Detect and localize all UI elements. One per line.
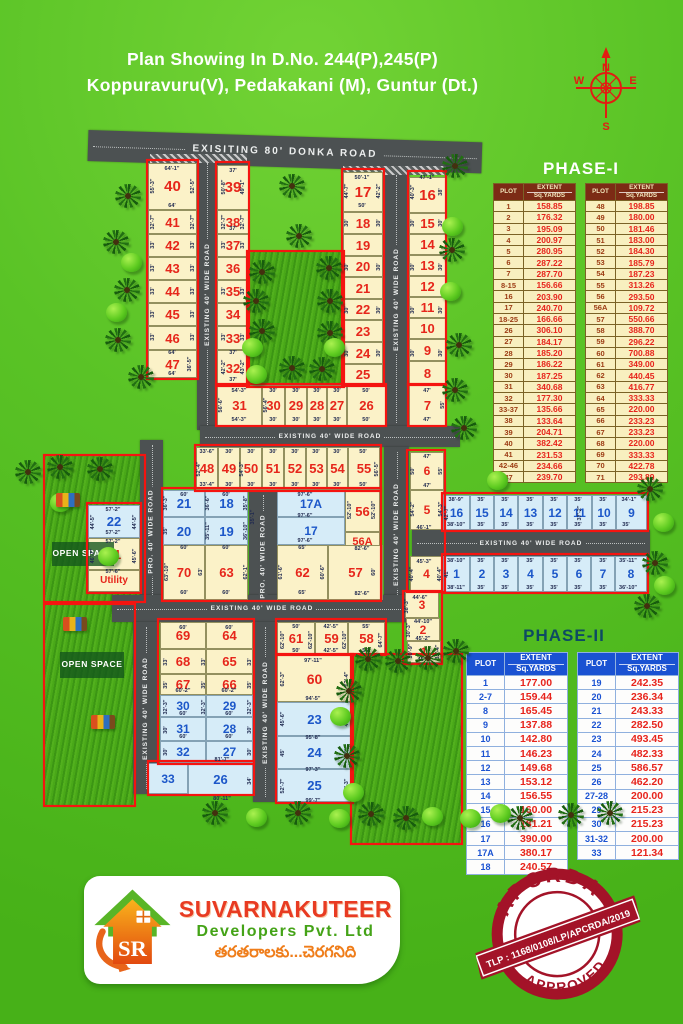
palm-tree-icon bbox=[355, 647, 381, 671]
plot-number-cell: 33-37 bbox=[494, 404, 524, 415]
plot-number-cell: 17A bbox=[467, 846, 505, 860]
extent-value-cell: 313.26 bbox=[616, 280, 668, 291]
dimension-label: 33'-4" bbox=[200, 482, 215, 488]
palm-tree-icon bbox=[202, 801, 228, 825]
dimension-label: 45'-2" bbox=[416, 636, 431, 642]
dimension-label: 63' bbox=[198, 568, 204, 575]
dimension-label: 62'-10" bbox=[342, 631, 348, 649]
palm-tree-icon bbox=[316, 256, 342, 280]
plot-p1-21: 21 bbox=[343, 277, 383, 299]
dimension-label: 30' bbox=[247, 748, 253, 755]
plot-number-cell: 14 bbox=[467, 789, 505, 803]
extent-value-cell: 137.88 bbox=[505, 718, 568, 732]
road-label: PRO. 40' WIDE ROAD bbox=[147, 486, 156, 576]
extent-value-cell: 177.00 bbox=[505, 676, 568, 690]
dimension-label: 32'-3" bbox=[163, 700, 169, 715]
dimension-label: 33' bbox=[240, 241, 246, 248]
dimension-label: 46'-1" bbox=[417, 525, 432, 531]
dimension-label: 35' bbox=[477, 522, 484, 528]
plot-number-cell: 17 bbox=[494, 302, 524, 313]
table-row: 59296.22 bbox=[586, 336, 668, 347]
extent-value-cell: 158.85 bbox=[524, 201, 576, 212]
table-row: 26306.10 bbox=[494, 325, 576, 336]
dimension-label: 60' bbox=[225, 734, 232, 740]
dimension-label: 97'-6" bbox=[298, 492, 313, 498]
bush-icon bbox=[121, 253, 142, 272]
table-row: 29215.23 bbox=[578, 803, 679, 817]
dimension-label: 61'-6" bbox=[278, 565, 284, 580]
road-label: EXISTING 40' WIDE ROAD bbox=[276, 432, 385, 441]
dimension-label: 32'-3" bbox=[201, 700, 207, 715]
dimension-label: 30' bbox=[333, 388, 340, 394]
table-row: 12149.68 bbox=[467, 761, 568, 775]
dimension-label: 33' bbox=[221, 241, 227, 248]
dimension-label: 37' bbox=[229, 350, 236, 356]
dimension-label: 30' bbox=[438, 263, 444, 270]
palm-tree-icon bbox=[558, 803, 584, 827]
dimension-label: 33' bbox=[247, 658, 253, 665]
table-row: 24482.33 bbox=[578, 746, 679, 760]
dimension-label: 30' bbox=[313, 388, 320, 394]
dimension-label: 56'-6" bbox=[218, 398, 224, 413]
plot-number-cell: 64 bbox=[586, 393, 616, 404]
dimension-label: 33' bbox=[150, 333, 156, 340]
dimension-label: 57'-2" bbox=[106, 530, 121, 536]
table-row: 11146.23 bbox=[467, 746, 568, 760]
extent-value-cell: 177.30 bbox=[524, 393, 576, 404]
extent-value-cell: 203.90 bbox=[524, 291, 576, 302]
extent-value-cell: 180.00 bbox=[616, 212, 668, 223]
extent-value-cell: 236.34 bbox=[616, 690, 679, 704]
palm-tree-icon bbox=[385, 649, 411, 673]
extent-value-cell: 109.72 bbox=[616, 302, 668, 313]
plot-p1-10: 10 bbox=[409, 318, 446, 339]
extent-value-cell: 333.33 bbox=[616, 393, 668, 404]
table-row: 18-25166.66 bbox=[494, 313, 576, 324]
dimension-label: 35'-11" bbox=[205, 522, 211, 540]
table-row: 58388.70 bbox=[586, 325, 668, 336]
plot-number-cell: 54 bbox=[586, 268, 616, 279]
bush-icon bbox=[106, 303, 127, 322]
plot-number-cell: 42-46 bbox=[494, 460, 524, 471]
extent-value-cell: 186.22 bbox=[524, 359, 576, 370]
dimension-label: 82'-6" bbox=[355, 546, 370, 552]
dimension-label: 33' bbox=[150, 241, 156, 248]
table-row: 54187.23 bbox=[586, 268, 668, 279]
dimension-label: 56'-4" bbox=[263, 398, 269, 413]
extent-value-cell: 282.50 bbox=[616, 718, 679, 732]
dimension-label: 62'-1" bbox=[243, 565, 249, 580]
table-row: 49180.00 bbox=[586, 212, 668, 223]
dimension-label: 30' bbox=[292, 388, 299, 394]
plot-number-cell: 2-7 bbox=[467, 690, 505, 704]
palm-tree-icon bbox=[285, 801, 311, 825]
extent-value-cell: 133.64 bbox=[524, 415, 576, 426]
dimension-label: 38'-10" bbox=[447, 522, 465, 528]
dimension-label: 57'-2" bbox=[106, 539, 121, 545]
table-row: 65220.00 bbox=[586, 404, 668, 415]
dimension-label: 40'-4" bbox=[409, 567, 415, 582]
table-row: 32177.30 bbox=[494, 393, 576, 404]
dimension-label: 30'-3" bbox=[406, 623, 412, 638]
dimension-label: 30' bbox=[376, 219, 382, 226]
dimension-label: 32'-7" bbox=[221, 215, 227, 230]
extent-value-cell: 349.00 bbox=[616, 359, 668, 370]
dimension-label: 32'-7" bbox=[150, 215, 156, 230]
plot-number-cell: 1 bbox=[467, 676, 505, 690]
dimension-label: 42'-7" bbox=[444, 506, 450, 521]
table-row: 17390.00 bbox=[467, 832, 568, 846]
dimension-label: 37' bbox=[229, 168, 236, 174]
table-row: 61349.00 bbox=[586, 359, 668, 370]
dimension-label: 47' bbox=[423, 454, 430, 460]
table-row: 62440.45 bbox=[586, 370, 668, 381]
table-row: 14156.55 bbox=[467, 789, 568, 803]
dimension-label: 45' bbox=[280, 749, 286, 756]
table-row: 63416.77 bbox=[586, 381, 668, 392]
plot-number-cell: 38 bbox=[494, 415, 524, 426]
dimension-label: 44'-10" bbox=[414, 619, 432, 625]
dimension-label: 56'-5" bbox=[374, 462, 380, 477]
bush-icon bbox=[242, 338, 263, 357]
dimension-label: 55'-3" bbox=[150, 179, 156, 194]
table-row: 5280.95 bbox=[494, 246, 576, 257]
plot-number-cell: 60 bbox=[586, 347, 616, 358]
extent-value-cell: 135.66 bbox=[524, 404, 576, 415]
dimension-label: 50' bbox=[358, 203, 365, 209]
table-row: 52184.30 bbox=[586, 246, 668, 257]
plot-number-cell: 7 bbox=[494, 268, 524, 279]
table-row: 40382.42 bbox=[494, 438, 576, 449]
table-row: 19242.35 bbox=[578, 676, 679, 690]
table-row: 20236.34 bbox=[578, 690, 679, 704]
dimension-label: 45'-3" bbox=[417, 559, 432, 565]
table-row: 68220.00 bbox=[586, 438, 668, 449]
dimension-label: 35' bbox=[574, 558, 581, 564]
playground-icon bbox=[63, 617, 87, 631]
plot-number-cell: 69 bbox=[586, 449, 616, 460]
dimension-label: 45'-6" bbox=[280, 712, 286, 727]
dimension-label: 46'-7" bbox=[90, 549, 96, 564]
table-row: 10142.80 bbox=[467, 732, 568, 746]
dimension-label: 30' bbox=[269, 417, 276, 423]
palm-tree-icon bbox=[115, 184, 141, 208]
extent-value-cell: 293.50 bbox=[616, 291, 668, 302]
plot-number-cell: 66 bbox=[586, 415, 616, 426]
table-row: 60700.88 bbox=[586, 347, 668, 358]
extent-value-cell: 306.10 bbox=[524, 325, 576, 336]
developer-logo: SR SUVARNAKUTEER Developers Pvt. Ltd తరత… bbox=[84, 876, 400, 984]
dimension-label: 47' bbox=[423, 417, 430, 423]
dimension-label: 42'-5" bbox=[324, 624, 339, 630]
palm-tree-icon bbox=[597, 801, 623, 825]
extent-value-cell: 220.00 bbox=[616, 404, 668, 415]
extent-value-cell: 181.46 bbox=[616, 223, 668, 234]
plot-number-cell: 22 bbox=[578, 718, 616, 732]
table-row: 56293.50 bbox=[586, 291, 668, 302]
dimension-label: 60'-2" bbox=[222, 688, 237, 694]
dimension-label: 30' bbox=[376, 263, 382, 270]
bush-icon bbox=[653, 513, 674, 532]
dimension-label: 54'-3" bbox=[239, 462, 245, 477]
plot-number-cell: 12 bbox=[467, 761, 505, 775]
extent-value-cell: 176.32 bbox=[524, 212, 576, 223]
plot-number-cell: 40 bbox=[494, 438, 524, 449]
dimension-label: 30' bbox=[292, 417, 299, 423]
plot-p1-36: 36 bbox=[217, 257, 249, 280]
phase2-table-left: PLOT EXTENTSq.YARDS 1177.002-7159.448165… bbox=[466, 652, 568, 875]
plot-p1-19: 19 bbox=[343, 234, 383, 256]
dimension-label: 44'-7" bbox=[344, 184, 350, 199]
table-row: 26462.20 bbox=[578, 775, 679, 789]
plot-number-cell: 71 bbox=[586, 472, 616, 483]
dimension-label: 35' bbox=[526, 558, 533, 564]
dimension-label: 33' bbox=[150, 287, 156, 294]
plot-number-cell: 11 bbox=[467, 746, 505, 760]
dimension-label: 30' bbox=[410, 306, 416, 313]
table-row: 70422.78 bbox=[586, 460, 668, 471]
table-row: 41231.53 bbox=[494, 449, 576, 460]
palm-tree-icon bbox=[642, 551, 668, 575]
plot-number-cell: 28 bbox=[494, 347, 524, 358]
phase1-table-left: PLOT EXTENTSq.YARDS 1158.852176.323195.0… bbox=[493, 183, 576, 483]
table-row: 39204.71 bbox=[494, 426, 576, 437]
plot-number-cell: 39 bbox=[494, 426, 524, 437]
extent-value-cell: 380.17 bbox=[505, 846, 568, 860]
extent-value-cell: 198.85 bbox=[616, 201, 668, 212]
dimension-label: 35' bbox=[574, 522, 581, 528]
dimension-label: 44'-5" bbox=[90, 515, 96, 530]
table-row: 13153.12 bbox=[467, 775, 568, 789]
dimension-label: 32'-7" bbox=[240, 215, 246, 230]
dimension-label: 33' bbox=[190, 287, 196, 294]
dimension-label: 42'-2" bbox=[376, 184, 382, 199]
dimension-label: 30' bbox=[344, 263, 350, 270]
palm-tree-icon bbox=[47, 455, 73, 479]
dimension-label: 35' bbox=[501, 558, 508, 564]
dimension-label: 52'-4" bbox=[196, 462, 202, 477]
plot-p2-19: 19 bbox=[205, 517, 248, 545]
dimension-label: 60' bbox=[222, 545, 229, 551]
palm-tree-icon bbox=[634, 594, 660, 618]
plot-p2-26: 26 bbox=[188, 763, 253, 795]
table-row: 30215.23 bbox=[578, 817, 679, 831]
company-name: SUVARNAKUTEER bbox=[179, 896, 392, 923]
extent-value-cell: 200.00 bbox=[616, 789, 679, 803]
extent-value-cell: 184.30 bbox=[616, 246, 668, 257]
plot-number-cell: 13 bbox=[467, 775, 505, 789]
dimension-label: 36'-3" bbox=[163, 496, 169, 511]
table-row: 55313.26 bbox=[586, 280, 668, 291]
dimension-label: 64' bbox=[168, 203, 175, 209]
logo-house-icon: SR bbox=[92, 883, 173, 977]
extent-value-cell: 240.70 bbox=[524, 302, 576, 313]
phase2-plot-header: PLOT bbox=[578, 653, 616, 676]
plot-number-cell: 41 bbox=[494, 449, 524, 460]
dimension-label: 65' bbox=[298, 590, 305, 596]
plot-p1-65: 65 bbox=[206, 649, 253, 674]
dimension-label: 30' bbox=[344, 349, 350, 356]
dimension-label: 30' bbox=[333, 482, 340, 488]
dimension-label: 35' bbox=[501, 585, 508, 591]
dimension-label: 64' bbox=[168, 371, 175, 377]
phase2-extent-header: EXTENTSq.YARDS bbox=[505, 653, 568, 676]
dimension-label: 97'-11" bbox=[304, 658, 322, 664]
table-row: 9137.88 bbox=[467, 718, 568, 732]
dimension-label: 33' bbox=[150, 264, 156, 271]
dimension-label: 41' bbox=[444, 570, 450, 577]
table-row: 1158.85 bbox=[494, 201, 576, 212]
plot-p1-23: 23 bbox=[343, 320, 383, 342]
dimension-label: 30' bbox=[410, 263, 416, 270]
road-label: EXISTING 40' WIDE ROAD bbox=[477, 539, 586, 548]
bush-icon bbox=[422, 807, 443, 826]
palm-tree-icon bbox=[334, 744, 360, 768]
extent-value-cell: 187.23 bbox=[616, 268, 668, 279]
extent-value-cell: 195.09 bbox=[524, 223, 576, 234]
dimension-label: 30' bbox=[344, 219, 350, 226]
phase2-plot-header: PLOT bbox=[467, 653, 505, 676]
plot-number-cell: 19 bbox=[578, 676, 616, 690]
extent-value-cell: 233.23 bbox=[616, 415, 668, 426]
extent-value-cell: 220.00 bbox=[616, 438, 668, 449]
table-row: 8-15156.66 bbox=[494, 280, 576, 291]
dimension-label: 57'-2" bbox=[106, 507, 121, 513]
dimension-label: 55' bbox=[440, 401, 446, 408]
table-row: 25586.57 bbox=[578, 761, 679, 775]
plot-number-cell: 63 bbox=[586, 381, 616, 392]
dimension-label: 35' bbox=[550, 497, 557, 503]
bush-icon bbox=[654, 576, 675, 595]
dimension-label: 30' bbox=[269, 449, 276, 455]
table-row: 67233.23 bbox=[586, 426, 668, 437]
dimension-label: 65' bbox=[298, 545, 305, 551]
bush-icon bbox=[490, 804, 511, 823]
palm-tree-icon bbox=[286, 224, 312, 248]
dimension-label: 45'-6" bbox=[132, 549, 138, 564]
extent-value-cell: 185.20 bbox=[524, 347, 576, 358]
extent-value-cell: 142.80 bbox=[505, 732, 568, 746]
palm-tree-icon bbox=[443, 639, 469, 663]
dimension-label: 35' bbox=[574, 497, 581, 503]
dimension-label: 30' bbox=[410, 219, 416, 226]
dimension-label: 47' bbox=[423, 388, 430, 394]
palm-tree-icon bbox=[103, 230, 129, 254]
phase1-table-right: PLOT EXTENTSq.YARDS 48198.8549180.005018… bbox=[585, 183, 668, 483]
dimension-label: 60' bbox=[225, 625, 232, 631]
dimension-label: 37'-2" bbox=[577, 506, 583, 521]
dimension-label: 30' bbox=[291, 449, 298, 455]
dimension-label: 60' bbox=[222, 590, 229, 596]
road: EXISTING 40' WIDE ROAD bbox=[197, 158, 217, 430]
dimension-label: 37' bbox=[229, 226, 236, 232]
dimension-label: 42'-2" bbox=[221, 360, 227, 375]
extent-value-cell: 200.00 bbox=[616, 832, 679, 846]
road-label: EXISTING 40' WIDE ROAD bbox=[141, 654, 150, 763]
table-row: 17240.70 bbox=[494, 302, 576, 313]
dimension-label: 52'-5" bbox=[190, 179, 196, 194]
dimension-label: 35' bbox=[622, 522, 629, 528]
table-row: 3195.09 bbox=[494, 223, 576, 234]
dimension-label: 40'-3" bbox=[410, 185, 416, 200]
phase2-table-right: PLOT EXTENTSq.YARDS 19242.3520236.342124… bbox=[577, 652, 679, 860]
dimension-label: 35' bbox=[599, 585, 606, 591]
dimension-label: 33' bbox=[221, 333, 227, 340]
plot-number-cell: 8 bbox=[467, 704, 505, 718]
dimension-label: 50' bbox=[359, 449, 366, 455]
palm-tree-icon bbox=[279, 356, 305, 380]
dimension-label: 32'-7" bbox=[190, 215, 196, 230]
playground-icon bbox=[91, 715, 115, 729]
bush-icon bbox=[329, 809, 350, 828]
dimension-label: 30' bbox=[247, 726, 253, 733]
dimension-label: 60' bbox=[371, 568, 377, 575]
plot-number-cell: 23 bbox=[578, 732, 616, 746]
extent-value-cell: 146.23 bbox=[505, 746, 568, 760]
plot-number-cell: 6 bbox=[494, 257, 524, 268]
dimension-label: 55' bbox=[438, 467, 444, 474]
extent-value-cell: 296.22 bbox=[616, 336, 668, 347]
dimension-label: 30' bbox=[410, 349, 416, 356]
plot-number-cell: 3 bbox=[494, 223, 524, 234]
extent-value-cell: 183.00 bbox=[616, 234, 668, 245]
dimension-label: 60' bbox=[180, 590, 187, 596]
table-row: 28185.20 bbox=[494, 347, 576, 358]
bush-icon bbox=[246, 365, 267, 384]
dimension-label: 35' bbox=[599, 558, 606, 564]
palm-tree-icon bbox=[317, 289, 343, 313]
extent-value-cell: 287.22 bbox=[524, 257, 576, 268]
extent-value-cell: 550.66 bbox=[616, 313, 668, 324]
dimension-label: 33' bbox=[163, 658, 169, 665]
extent-value-cell: 149.68 bbox=[505, 761, 568, 775]
plot-number-cell: 18-25 bbox=[494, 313, 524, 324]
plot-number-cell: 31 bbox=[494, 381, 524, 392]
plot-number-cell: 24 bbox=[578, 746, 616, 760]
dimension-label: 82'-6" bbox=[355, 591, 370, 597]
dimension-label: 64'-1" bbox=[165, 166, 180, 172]
palm-tree-icon bbox=[15, 460, 41, 484]
extent-value-cell: 440.45 bbox=[616, 370, 668, 381]
palm-tree-icon bbox=[446, 333, 472, 357]
dimension-label: 33' bbox=[190, 264, 196, 271]
bush-icon bbox=[442, 217, 463, 236]
dimension-label: 38'-3" bbox=[404, 599, 410, 614]
dimension-label: 62'-3" bbox=[280, 672, 286, 687]
road: EXISTING 40' WIDE ROAD bbox=[200, 426, 460, 447]
table-row: 53185.79 bbox=[586, 257, 668, 268]
plot-number-cell: 57 bbox=[586, 313, 616, 324]
extent-value-cell: 242.35 bbox=[616, 676, 679, 690]
extent-value-cell: 200.97 bbox=[524, 234, 576, 245]
palm-tree-icon bbox=[507, 806, 533, 830]
plot-number-cell: 30 bbox=[494, 370, 524, 381]
table-row: 56A109.72 bbox=[586, 302, 668, 313]
bush-icon bbox=[440, 282, 461, 301]
extent-value-cell: 215.23 bbox=[616, 803, 679, 817]
dimension-label: 35' bbox=[526, 497, 533, 503]
plot-number-cell: 9 bbox=[467, 718, 505, 732]
plot-number-cell: 68 bbox=[586, 438, 616, 449]
palm-tree-icon bbox=[336, 679, 362, 703]
road-label: EXISTING 40' WIDE ROAD bbox=[208, 604, 317, 613]
road-label: EXISTING 40' WIDE ROAD bbox=[261, 658, 270, 767]
dimension-label: 54'-2" bbox=[410, 502, 416, 517]
plot-number-cell: 67 bbox=[586, 426, 616, 437]
palm-tree-icon bbox=[442, 378, 468, 402]
plot-p1-25: 25 bbox=[343, 364, 383, 385]
table-row: 21243.33 bbox=[578, 704, 679, 718]
